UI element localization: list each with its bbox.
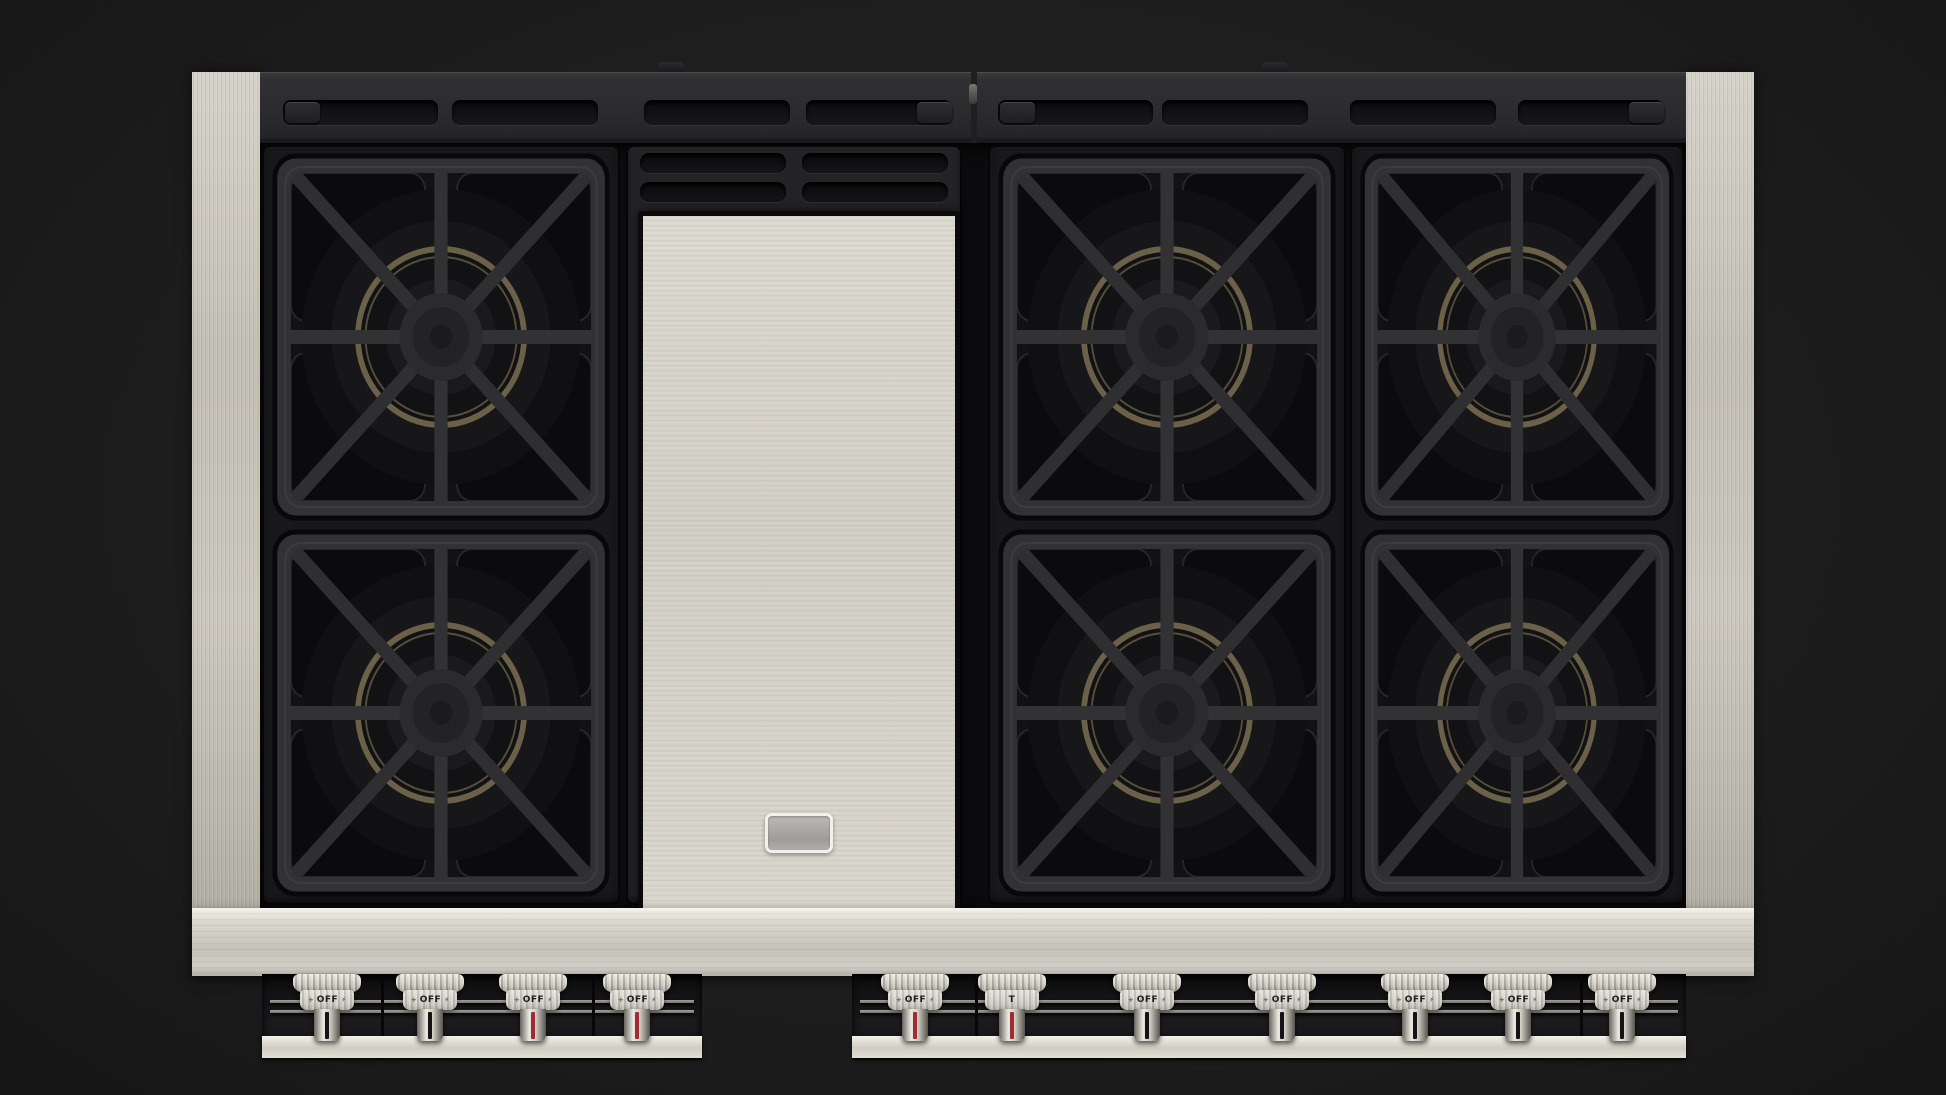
knob-indicator-line (635, 1012, 639, 1039)
knob-label: OFF (523, 996, 544, 1005)
side-panel-left (192, 72, 260, 908)
knob-face: +OFF⚡ (403, 990, 457, 1010)
spark-icon: ⚡ (341, 997, 346, 1004)
griddle-module (626, 145, 962, 905)
burner-grate (1360, 529, 1674, 897)
knob-indicator-line (1010, 1012, 1014, 1039)
grate-position-4 (998, 529, 1336, 897)
side-panel-right (1686, 72, 1754, 908)
knob-indicator-line (1620, 1012, 1624, 1039)
grate-position-2 (272, 529, 610, 897)
knob-stem (624, 1009, 650, 1041)
plus-mark-icon: + (514, 997, 520, 1004)
griddle-plate (638, 211, 960, 913)
grate-hub (1125, 669, 1208, 757)
knob-face: +OFF⚡ (506, 990, 560, 1010)
knob-face: T (985, 990, 1039, 1010)
plus-mark-icon: + (618, 997, 624, 1004)
knob-label: OFF (1137, 996, 1158, 1005)
knob-5[interactable]: +OFF⚡ (872, 974, 958, 1042)
knob-stem (417, 1009, 443, 1041)
knob-label: OFF (627, 996, 648, 1005)
cooktop-well (260, 143, 1686, 908)
knob-indicator-line (1280, 1012, 1284, 1039)
griddle-vent-slot (802, 182, 948, 202)
knob-4[interactable]: +OFF⚡ (594, 974, 680, 1042)
knob-face: +OFF⚡ (1388, 990, 1442, 1010)
grate-position-6 (1360, 529, 1674, 897)
spark-icon: ⚡ (444, 997, 449, 1004)
knob-face: +OFF⚡ (1595, 990, 1649, 1010)
griddle-vent-slot (640, 182, 786, 202)
knob-indicator-line (1413, 1012, 1417, 1039)
knob-7[interactable]: +OFF⚡ (1239, 974, 1325, 1042)
knob-face: +OFF⚡ (610, 990, 664, 1010)
trim-divider-pin (969, 84, 977, 104)
grate-hub (1125, 293, 1208, 381)
grate-hub (1478, 669, 1555, 757)
spark-icon: ⚡ (1532, 997, 1537, 1004)
vent-slot-button (1629, 102, 1664, 123)
burner-grate (1360, 153, 1674, 521)
knob-indicator-line (531, 1012, 535, 1039)
griddle-vent-slot (802, 153, 948, 173)
vent-slot (644, 100, 790, 125)
knob-stem (314, 1009, 340, 1041)
knob-label: OFF (317, 996, 338, 1005)
grate-hub (1478, 293, 1555, 381)
vent-slot-button (917, 102, 952, 123)
griddle-vent-slot (640, 153, 786, 173)
grate-hub (399, 293, 482, 381)
knob-face: +OFF⚡ (1491, 990, 1545, 1010)
plus-mark-icon: + (1499, 997, 1505, 1004)
knob-label: OFF (1508, 996, 1529, 1005)
knob-indicator-line (1516, 1012, 1520, 1039)
knob-2[interactable]: +OFF⚡ (387, 974, 473, 1042)
knob-label: OFF (1272, 996, 1293, 1005)
vent-slot (1350, 100, 1496, 125)
burner-module-right (1350, 145, 1684, 905)
knob-stem (520, 1009, 546, 1041)
knob-face: +OFF⚡ (888, 990, 942, 1010)
spark-icon: ⚡ (1636, 997, 1641, 1004)
knob-griddle[interactable]: T (969, 974, 1055, 1042)
knob-indicator-line (913, 1012, 917, 1039)
knob-stem (1609, 1009, 1635, 1041)
knob-label: OFF (1612, 996, 1633, 1005)
plus-mark-icon: + (411, 997, 417, 1004)
top-vent-trim-left (260, 72, 971, 138)
rangetop-product-render: +OFF⚡+OFF⚡+OFF⚡+OFF⚡ +OFF⚡T+OFF⚡+OFF⚡+OF… (0, 0, 1946, 1095)
spark-icon: ⚡ (929, 997, 934, 1004)
knob-label: OFF (1405, 996, 1426, 1005)
knob-10[interactable]: +OFF⚡ (1579, 974, 1665, 1042)
grate-hub (399, 669, 482, 757)
plus-mark-icon: + (896, 997, 902, 1004)
griddle-badge (765, 813, 833, 853)
spark-icon: ⚡ (1161, 997, 1166, 1004)
spark-icon: ⚡ (1429, 997, 1434, 1004)
knob-indicator-line (428, 1012, 432, 1039)
knob-3[interactable]: +OFF⚡ (490, 974, 576, 1042)
knob-stem (1269, 1009, 1295, 1041)
knob-stem (1402, 1009, 1428, 1041)
vent-slot (1162, 100, 1308, 125)
plus-mark-icon: + (1263, 997, 1269, 1004)
grate-position-5 (1360, 153, 1674, 521)
knob-label: T (1009, 996, 1016, 1005)
burner-grate (998, 529, 1336, 897)
knob-6[interactable]: +OFF⚡ (1104, 974, 1190, 1042)
knob-9[interactable]: +OFF⚡ (1475, 974, 1561, 1042)
knob-label: OFF (420, 996, 441, 1005)
spark-icon: ⚡ (651, 997, 656, 1004)
spark-icon: ⚡ (1296, 997, 1301, 1004)
knob-indicator-line (325, 1012, 329, 1039)
burner-module-center-right (988, 145, 1346, 905)
plus-mark-icon: + (1128, 997, 1134, 1004)
knob-indicator-line (1145, 1012, 1149, 1039)
grate-position-3 (998, 153, 1336, 521)
spark-icon: ⚡ (547, 997, 552, 1004)
grate-position-1 (272, 153, 610, 521)
plus-mark-icon: + (1603, 997, 1609, 1004)
front-control-rail (192, 908, 1754, 976)
knob-8[interactable]: +OFF⚡ (1372, 974, 1458, 1042)
vent-slot (452, 100, 598, 125)
knob-stem (1505, 1009, 1531, 1041)
burner-grate (272, 529, 610, 897)
knob-face: +OFF⚡ (300, 990, 354, 1010)
knob-panel-left: +OFF⚡+OFF⚡+OFF⚡+OFF⚡ (262, 974, 702, 1060)
vent-slot-button (1000, 102, 1035, 123)
knob-panel-right: +OFF⚡T+OFF⚡+OFF⚡+OFF⚡+OFF⚡+OFF⚡ (852, 974, 1686, 1060)
burner-grate (998, 153, 1336, 521)
knob-label: OFF (905, 996, 926, 1005)
burner-module-left (262, 145, 620, 905)
vent-slot-button (285, 102, 320, 123)
knob-face: +OFF⚡ (1255, 990, 1309, 1010)
top-vent-trim-right (977, 72, 1686, 138)
knob-stem (902, 1009, 928, 1041)
plus-mark-icon: + (308, 997, 314, 1004)
burner-grate (272, 153, 610, 521)
knob-face: +OFF⚡ (1120, 990, 1174, 1010)
knob-stem (1134, 1009, 1160, 1041)
plus-mark-icon: + (1396, 997, 1402, 1004)
knob-stem (999, 1009, 1025, 1041)
knob-1[interactable]: +OFF⚡ (284, 974, 370, 1042)
